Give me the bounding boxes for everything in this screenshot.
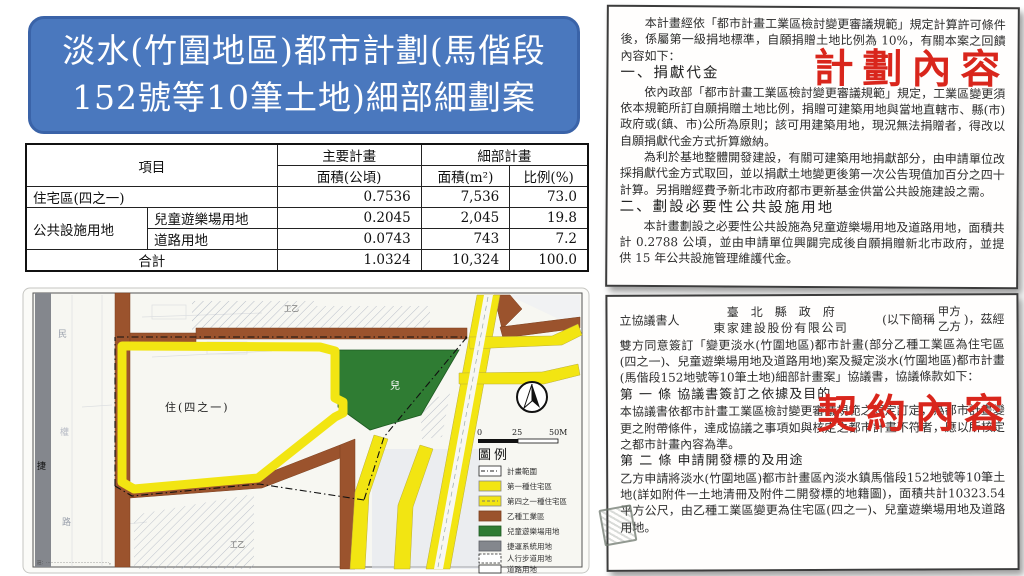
cell-ratio: 100.0 (510, 250, 588, 272)
party-b-abbrev: 乙方 (938, 320, 961, 336)
header-ratio: 比例(%) (510, 166, 588, 187)
legend-title: 圖例 (478, 448, 510, 463)
scale-end: 50M (549, 428, 567, 437)
contract-article2-body: 乙方申請將淡水(竹圍地區)都市計畫區內淡水鎮馬偕段152地號等10筆土地(詳如附… (620, 469, 1005, 536)
table-row: 合計 1.0324 10,324 100.0 (26, 250, 588, 272)
legend-item: 兒童遊樂場用地 (479, 526, 560, 536)
party-b-name: 東家建設股份有限公司 (683, 320, 880, 337)
scale-start: 0 (477, 428, 482, 437)
industrial-label-top: 工乙 (284, 304, 299, 313)
row-residential: 住宅區(四之一) (26, 187, 277, 208)
header-area-m2: 面積(m²) (421, 166, 510, 187)
title-box: 淡水(竹圍地區)都市計劃(馬偕段 152號等10筆土地)細部細劃案 (28, 16, 580, 134)
contract-content-document: 契約內容 立協議書人 臺北縣政府 東家建設股份有限公司 (以下簡稱 甲方 乙方 … (605, 293, 1019, 572)
street-char-2: 權 (60, 426, 69, 438)
table-row: 公共設施用地 兒童遊樂場用地 0.2045 2,045 19.8 (26, 208, 588, 229)
cell-area-m2: 7,536 (421, 187, 510, 208)
legend-label: 兒童遊樂場用地 (507, 526, 560, 536)
map-footnote: 註：⋯⋯⋯⋯⋯⋯⋯⋯⋯⋯⋯⋯⋯⋯。 (37, 559, 114, 566)
cell-ratio: 73.0 (510, 187, 588, 208)
row-road: 道路用地 (147, 229, 277, 250)
party-a-abbrev: 甲方 (938, 304, 961, 320)
header-detail-plan: 細部計畫 (421, 144, 588, 166)
legend-item: 乙種工業區 (479, 511, 545, 521)
header-main-plan: 主要計畫 (277, 144, 421, 166)
cell-area-ha: 0.2045 (277, 208, 421, 229)
legend-label: 第一種住宅區 (507, 481, 552, 491)
title-line-1: 淡水(竹圍地區)都市計劃(馬偕段 (62, 28, 546, 75)
cell-ratio: 7.2 (510, 229, 588, 250)
party-abbrevs: 甲方 乙方 (938, 304, 961, 335)
legend-label: 計畫範圍 (507, 466, 537, 476)
contract-article2-title: 第 二 條 申請開發標的及用途 (620, 451, 1005, 470)
header-area-ha: 面積(公頃) (277, 166, 421, 187)
table-row: 住宅區(四之一) 0.7536 7,536 73.0 (26, 187, 588, 208)
legend-item: 道路用地 (479, 564, 537, 574)
mrt-label: 捷 (37, 460, 46, 472)
opening-prefix: 立協議書人 (619, 313, 679, 330)
plan-section1-paragraph2: 為利於基地整體開發建設，有關可建築用地捐獻部分，由申請單位改採捐獻代金方式取回，… (620, 149, 1005, 200)
seal-stamp (598, 504, 637, 546)
industrial-label-bottom: 工乙 (230, 540, 245, 549)
playground-label: 兒 (390, 380, 400, 392)
slide: 淡水(竹圍地區)都市計劃(馬偕段 152號等10筆土地)細部細劃案 項目 主要計… (0, 0, 1024, 576)
row-playground: 兒童遊樂場用地 (147, 208, 277, 229)
title-line-2: 152號等10筆土地)細部細劃案 (72, 75, 536, 122)
contract-content-overlay: 契約內容 (817, 387, 1013, 442)
legend-item: 捷運系統用地 (479, 541, 552, 551)
street-char-1: 民 (58, 329, 67, 340)
party-a-name: 臺北縣政府 (682, 304, 879, 321)
plan-content-document: 計劃內容 本計畫經依「都市計畫工業區檢討變更審議規範」規定計算許可條件後，係屬第… (605, 5, 1020, 290)
row-public-facility: 公共設施用地 (26, 208, 147, 250)
legend-item: 計畫範圍 (479, 466, 537, 476)
north-compass-icon (517, 382, 547, 412)
mrt-strip (35, 293, 51, 567)
cell-area-ha: 0.0743 (277, 229, 421, 250)
cell-area-m2: 2,045 (421, 208, 510, 229)
legend-label: 捷運系統用地 (507, 541, 552, 551)
legend-item: 第四之一種住宅區 (479, 496, 567, 506)
zoning-map-figure: 捷 民 權 路 (22, 287, 590, 574)
legend-label: 人行步道用地 (507, 553, 552, 563)
row-total: 合計 (26, 250, 277, 272)
contract-opening-row: 立協議書人 臺北縣政府 東家建設股份有限公司 (以下簡稱 甲方 乙方 )，茲經 (619, 303, 1004, 337)
street-char-3: 路 (62, 516, 71, 528)
plan-section2-title: 二、劃設必要性公共設施用地 (620, 198, 1005, 220)
legend-item: 人行步道用地 (479, 553, 552, 563)
legend-label: 道路用地 (507, 564, 537, 574)
legend-label: 第四之一種住宅區 (507, 496, 567, 506)
abbrev-suffix: )，茲經 (964, 311, 1005, 327)
zoning-map: 捷 民 權 路 (22, 287, 590, 574)
residential-label: 住(四之一) (165, 400, 230, 414)
plan-section2-paragraph1: 本計畫劃設之必要性公共設施為兒童遊樂場用地及道路用地，面積共計 0.2788 公… (619, 217, 1004, 268)
land-use-table: 項目 主要計畫 細部計畫 面積(公頃) 面積(m²) 比例(%) 住宅區(四之一… (25, 143, 589, 272)
table-header-row-1: 項目 主要計畫 細部計畫 (26, 144, 588, 166)
cell-area-ha: 0.7536 (277, 187, 421, 208)
cell-ratio: 19.8 (510, 208, 588, 229)
contract-opening-body: 雙方同意簽訂「變更淡水(竹圍地區)都市計畫(部分乙種工業區為住宅區(四之一)、兒… (620, 336, 1005, 387)
cell-area-m2: 743 (421, 229, 510, 250)
plan-content-overlay: 計劃內容 (813, 42, 1009, 98)
legend-item: 第一種住宅區 (479, 481, 552, 491)
scale-mid: 25 (512, 428, 522, 437)
party-names: 臺北縣政府 東家建設股份有限公司 (682, 304, 879, 337)
legend-label: 乙種工業區 (507, 511, 545, 521)
abbrev-prefix: (以下簡稱 (882, 312, 935, 329)
cell-area-m2: 10,324 (421, 250, 510, 272)
cell-area-ha: 1.0324 (277, 250, 421, 272)
header-item: 項目 (26, 144, 277, 187)
